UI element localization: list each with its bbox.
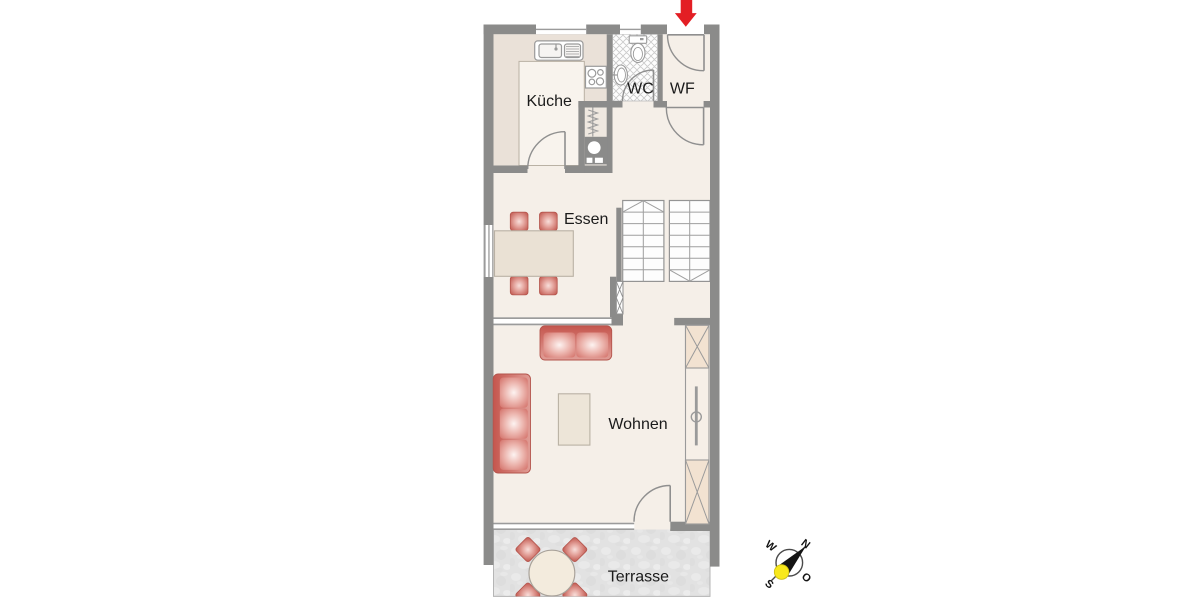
svg-text:O: O xyxy=(799,571,813,586)
svg-text:WC: WC xyxy=(627,80,654,97)
svg-text:Essen: Essen xyxy=(564,211,608,228)
svg-text:W: W xyxy=(763,539,779,555)
svg-text:Küche: Küche xyxy=(527,93,572,110)
svg-text:S: S xyxy=(762,577,775,591)
svg-text:N: N xyxy=(799,537,813,551)
svg-text:Terrasse: Terrasse xyxy=(608,569,669,586)
svg-text:WF: WF xyxy=(670,80,695,97)
svg-text:Wohnen: Wohnen xyxy=(608,416,667,433)
